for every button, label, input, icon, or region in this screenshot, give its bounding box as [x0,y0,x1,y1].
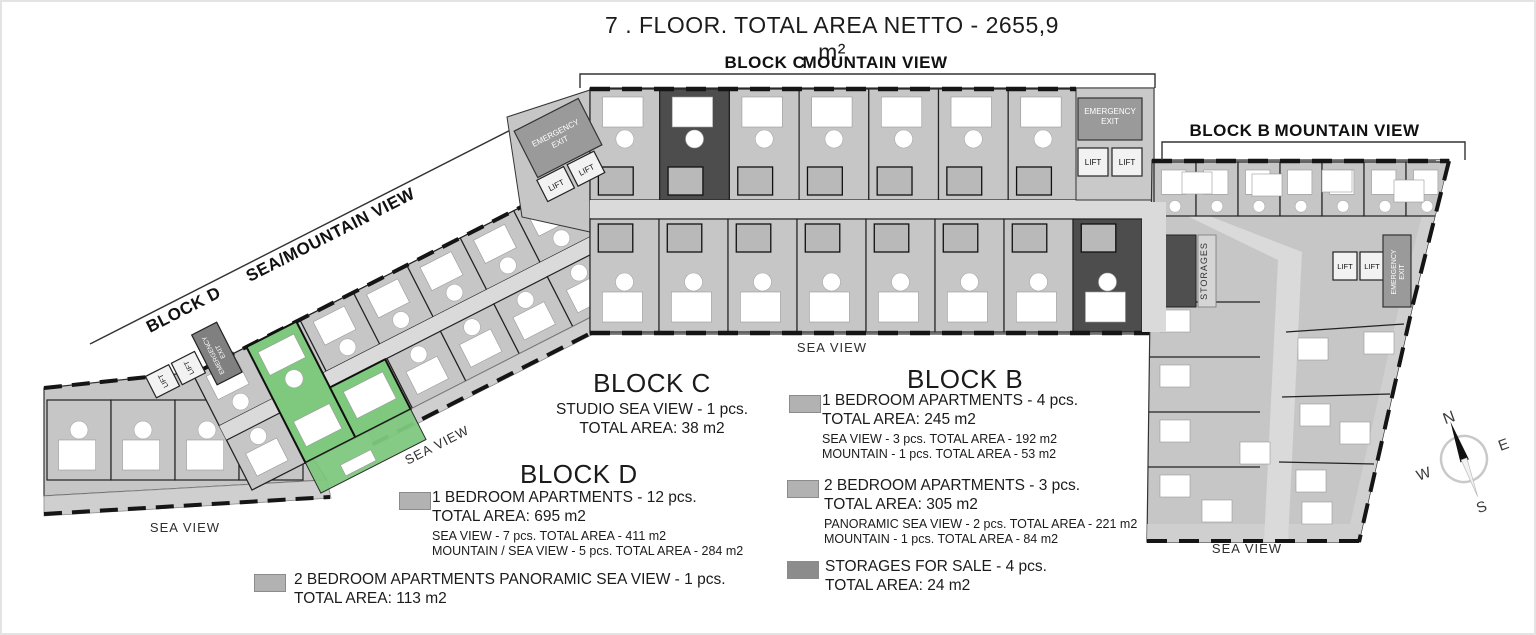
corridor [590,200,1154,218]
room-unit [939,89,1009,200]
lift-label: LIFT [1364,262,1380,271]
sea-view-label-d-west: SEA VIEW [150,520,220,535]
emergency-exit-label: EMERGENCY [1084,107,1136,116]
legend-block-d-item1: 1 BEDROOM APARTMENTS - 12 pcs. TOTAL ARE… [432,488,743,559]
corridor-connection [1142,202,1166,332]
bed [1302,502,1332,524]
bed [1252,174,1282,196]
room-unit [111,400,175,480]
legend-swatch-1br-b [789,395,821,413]
compass-w: W [1414,463,1434,484]
compass: N E S W [1399,394,1529,532]
sea-view-label-b: SEA VIEW [1212,541,1282,556]
room-unit [866,219,935,332]
legend-block-b-item2: 2 BEDROOM APARTMENTS - 3 pcs. TOTAL AREA… [824,476,1137,547]
legend-block-b-item1: 1 BEDROOM APARTMENTS - 4 pcs. TOTAL AREA… [822,391,1078,462]
bed [1322,170,1352,192]
bed [1182,172,1212,194]
room-unit [797,219,866,332]
block-b-header: BLOCK B [1190,121,1271,140]
lift-label: LIFT [1119,158,1136,167]
block-c-wing: EMERGENCY EXIT LIFT LIFT EMERGENCY EXIT … [507,53,1155,355]
legend-swatch-2br-panoramic [254,574,286,592]
bed [1394,180,1424,202]
legend-swatch-2br-b [787,480,819,498]
compass-s: S [1474,498,1489,517]
compass-n: N [1441,408,1458,428]
sea-view-label-c: SEA VIEW [797,340,867,355]
lift-label: LIFT [1085,158,1102,167]
bed [1298,338,1328,360]
bed [1160,475,1190,497]
legend-block-c-title: BLOCK C [547,368,757,399]
bed [1202,500,1232,522]
floor-plan-drawing: EMERGENCY EXIT LIFT LIFT BLOCK D SEA/MOU… [2,2,1536,635]
legend-line: TOTAL AREA: 38 m2 [547,419,757,438]
room-unit [869,89,939,200]
room-unit [1008,89,1078,200]
legend-block-c: STUDIO SEA VIEW - 1 pcs. TOTAL AREA: 38 … [547,400,757,438]
room-unit [1073,219,1142,332]
room-unit [1280,162,1322,216]
room-unit [799,89,869,200]
legend-block-d-title: BLOCK D [520,459,638,490]
legend-swatch-storages [787,561,819,579]
storages-label: STORAGES [1199,242,1209,300]
legend-line: STUDIO SEA VIEW - 1 pcs. [547,400,757,419]
block-b-wing: STORAGES LIFT LIFT EMERGENCY EXIT BLOCK … [1140,121,1465,556]
room-unit [935,219,1004,332]
bed [1364,332,1394,354]
lift-label: LIFT [1337,262,1353,271]
emergency-exit-label: EMERGENCY [1391,249,1398,294]
room-unit [729,89,799,200]
svg-text:EXIT: EXIT [1399,263,1406,279]
room-unit [660,89,730,200]
bed [1160,420,1190,442]
legend-swatch-1br-d [399,492,431,510]
dimension-bracket [1162,142,1465,160]
legend-block-b-item3: STORAGES FOR SALE - 4 pcs. TOTAL AREA: 2… [825,557,1047,595]
room-unit [659,219,728,332]
bed [1300,404,1330,426]
bed [1160,365,1190,387]
room-unit [47,400,111,480]
floor-plan-page: 7 . FLOOR. TOTAL AREA NETTO - 2655,9 m² [0,0,1536,635]
svg-text:EXIT: EXIT [1101,117,1119,126]
room-unit [1004,219,1073,332]
dimension-bracket [580,74,1155,88]
bed [1240,442,1270,464]
room-unit [590,219,659,332]
bed [1296,470,1326,492]
bed [1340,422,1370,444]
block-c-view-header: MOUNTAIN VIEW [802,53,947,72]
room-unit [728,219,797,332]
block-d-view-header: SEA/MOUNTAIN VIEW [243,184,418,286]
legend-block-d-item2: 2 BEDROOM APARTMENTS PANORAMIC SEA VIEW … [294,570,726,608]
compass-e: E [1496,435,1511,454]
block-b-view-header: MOUNTAIN VIEW [1274,121,1419,140]
block-c-header: BLOCK C [725,53,806,72]
